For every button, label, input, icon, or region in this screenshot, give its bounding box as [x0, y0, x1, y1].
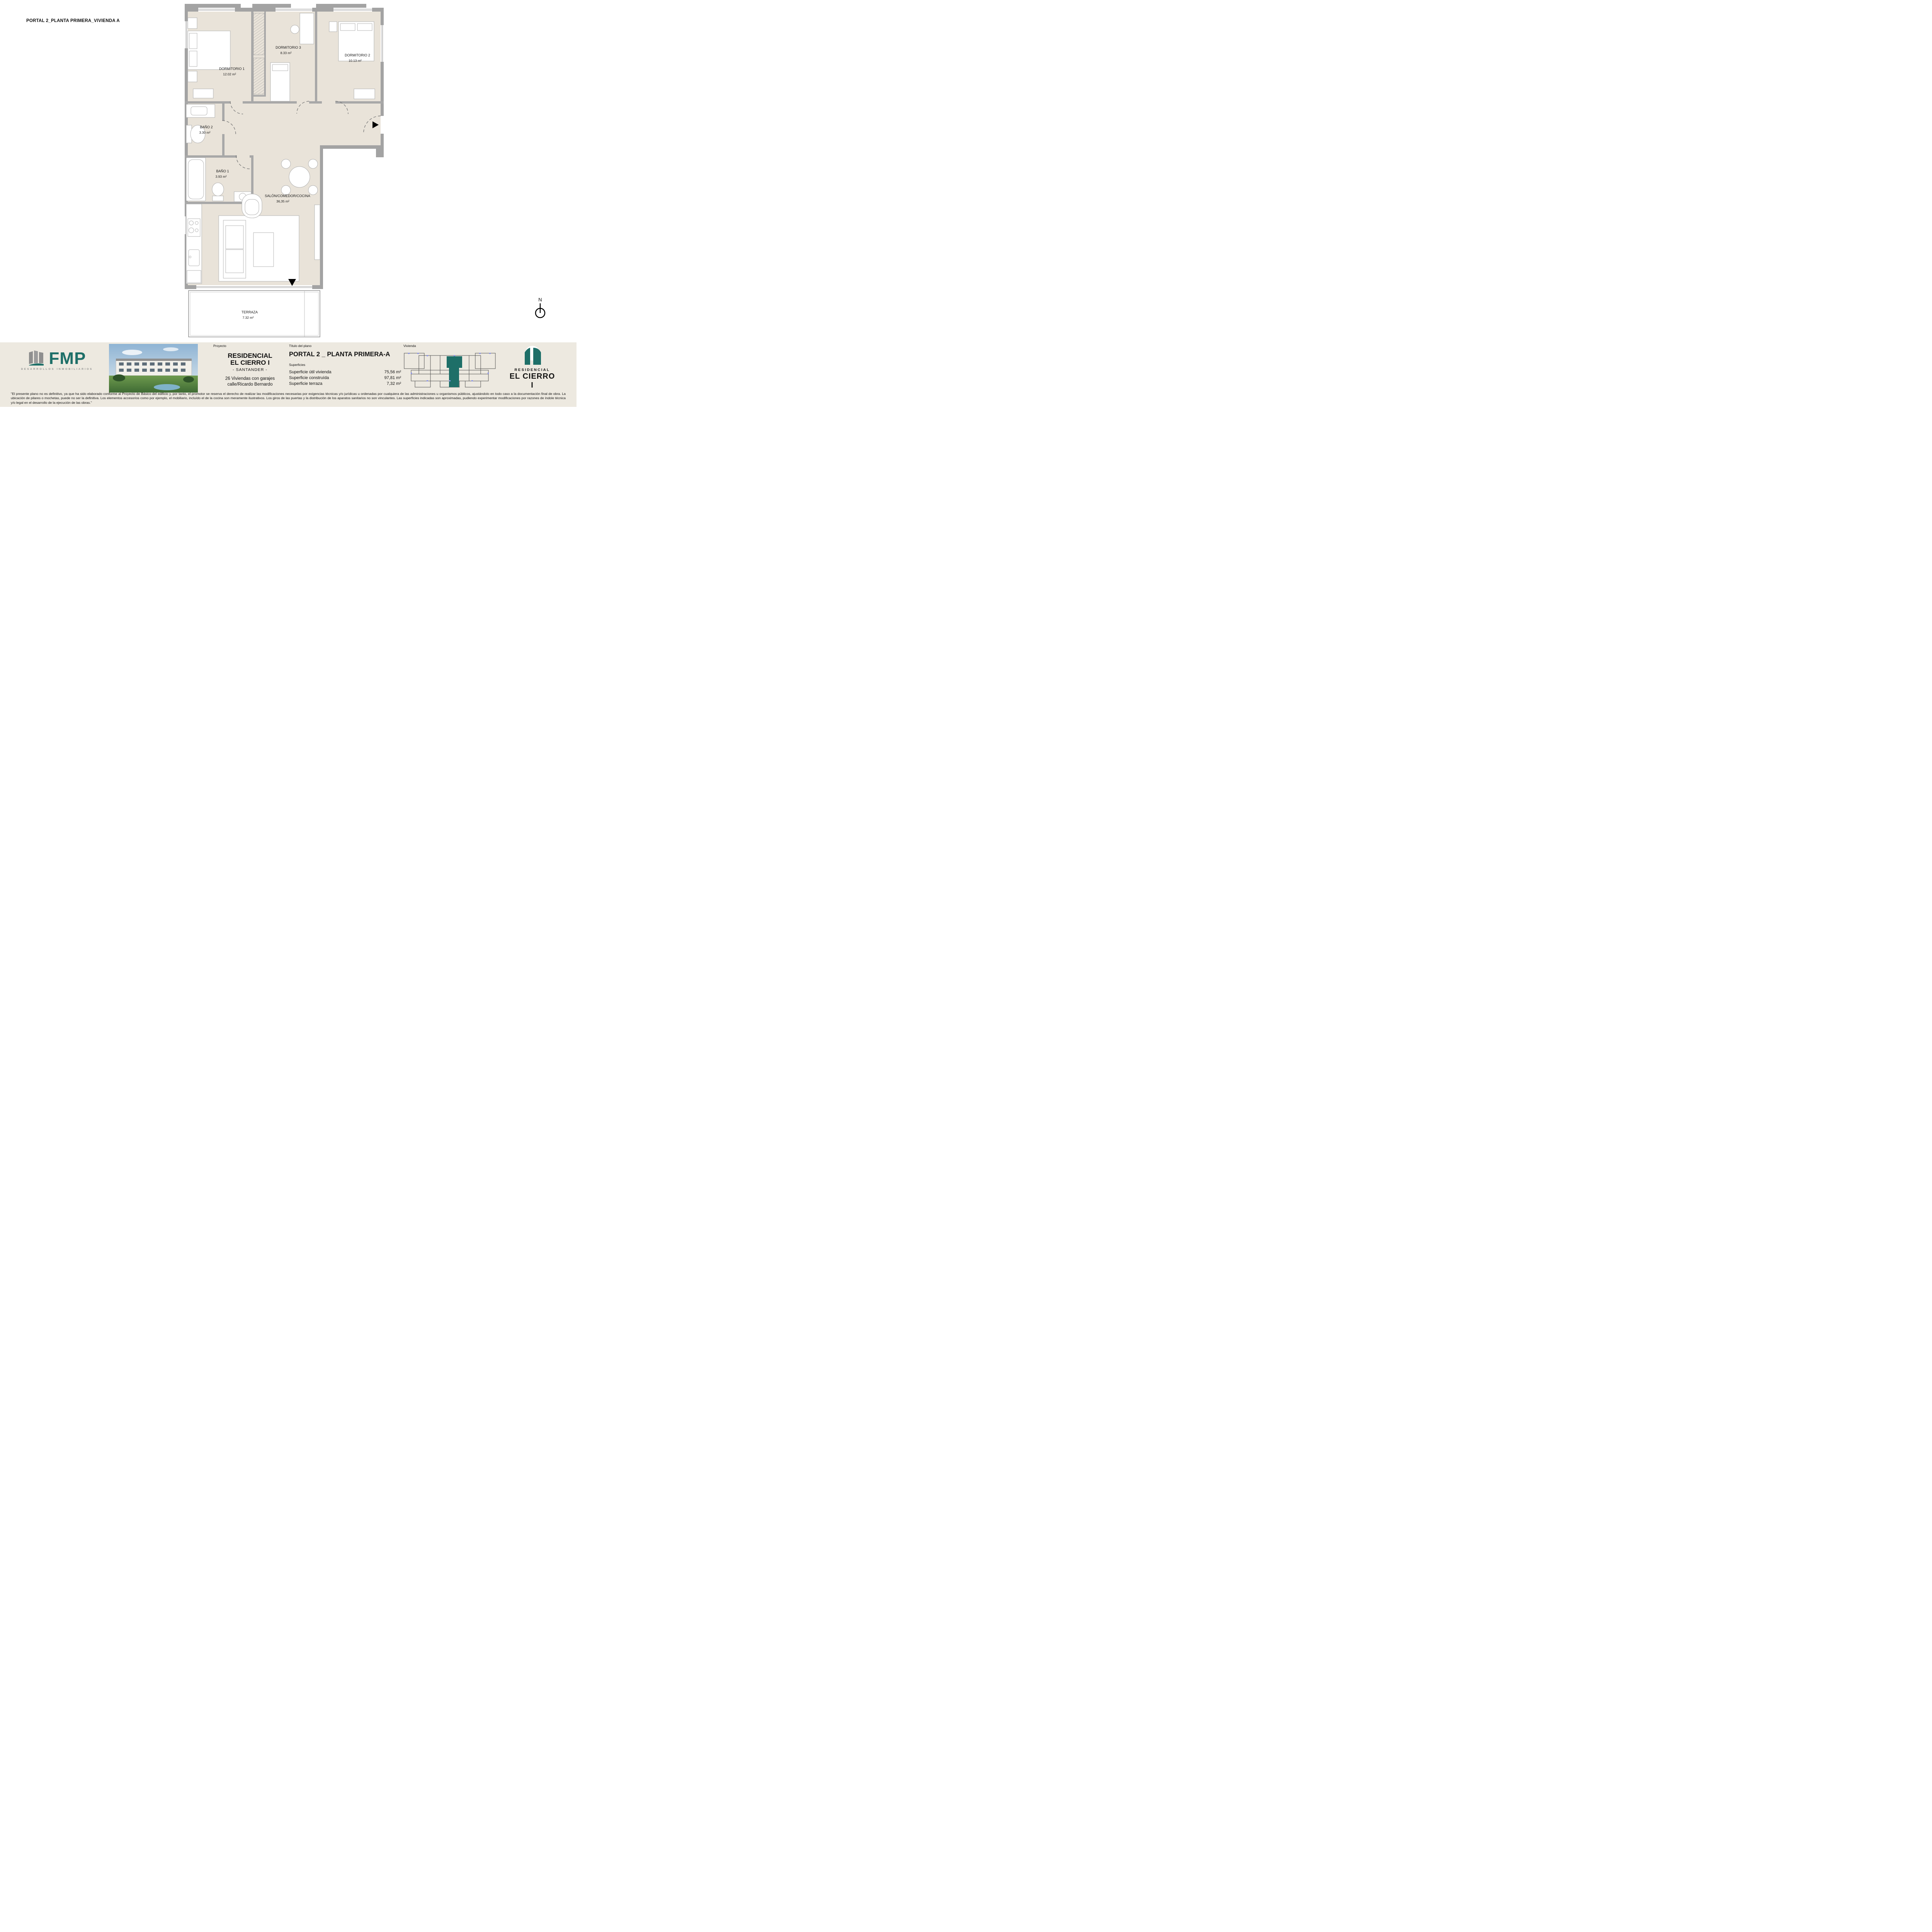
project-section: Proyecto RESIDENCIAL EL CIERRO I - SANTA… — [213, 344, 287, 388]
unit-keyplan-section: Vivienda — [403, 344, 500, 392]
dresser — [354, 89, 375, 99]
project-photo — [109, 344, 198, 393]
nightstand — [188, 18, 197, 29]
project-description-line2: calle/Ricardo Bernardo — [213, 382, 287, 388]
page-title: PORTAL 2_PLANTA PRIMERA_VIVIENDA A — [26, 19, 120, 23]
closets — [253, 13, 264, 94]
floor-plan: DORMITORIO 1 12.02 m² DORMITORIO 3 8.33 … — [185, 4, 393, 339]
north-label: N — [532, 297, 548, 303]
room-label: TERRAZA — [241, 310, 258, 314]
room-area: 7.32 m² — [243, 316, 254, 320]
room-label: DORMITORIO 3 — [276, 46, 301, 49]
surface-label: Superficie útil vivienda — [289, 370, 331, 374]
brand-logo: RESIDENCIAL EL CIERRO I — [508, 345, 556, 390]
desk — [300, 13, 314, 44]
room-area: 36,35 m² — [276, 199, 289, 203]
brand-line2: EL CIERRO I — [508, 372, 556, 390]
nightstand — [329, 22, 337, 32]
highlighted-unit — [447, 356, 462, 368]
brand-icon — [522, 345, 543, 365]
superficies-label: Superficies — [289, 363, 401, 367]
sheet-title-label: Título del plano — [289, 344, 401, 348]
north-indicator: N — [532, 297, 548, 321]
room-label: DORMITORIO 1 — [219, 67, 245, 71]
tv-unit — [315, 205, 320, 260]
toilet — [212, 183, 224, 196]
surface-value: 97,81 m² — [384, 376, 401, 380]
project-subtitle: - SANTANDER - — [213, 367, 287, 372]
unit-keyplan-label: Vivienda — [403, 344, 500, 348]
fmp-logo: FMP DESARROLLOS INMOBILIARIOS — [12, 348, 102, 371]
dining-table — [289, 167, 310, 187]
room-area: 8.33 m² — [281, 51, 292, 55]
room-area: 3.93 m² — [216, 175, 227, 179]
surface-row: Superficie terraza 7,32 m² — [289, 381, 401, 386]
surface-label: Superficie construída — [289, 376, 329, 380]
chair — [291, 25, 299, 34]
room-label: BAÑO 2 — [200, 125, 213, 129]
room-area: 3.30 m² — [199, 131, 211, 134]
room-area: 10.13 m² — [349, 59, 362, 63]
surface-label: Superficie terraza — [289, 381, 322, 386]
project-title-line2: EL CIERRO I — [213, 359, 287, 366]
room-label: BAÑO 1 — [216, 169, 229, 173]
project-title-line1: RESIDENCIAL — [213, 352, 287, 359]
project-description-line1: 26 Viviendas con garajes — [213, 376, 287, 382]
plan-sheet: PORTAL 2_PLANTA PRIMERA_VIVIENDA A — [0, 0, 577, 407]
fmp-building-icon — [28, 348, 46, 366]
title-block: FMP DESARROLLOS INMOBILIARIOS — [0, 342, 577, 407]
surface-value: 7,32 m² — [387, 381, 401, 386]
project-label: Proyecto — [213, 344, 287, 348]
chair — [308, 159, 318, 168]
sheet-title: PORTAL 2 _ PLANTA PRIMERA-A — [289, 351, 401, 358]
chair — [281, 159, 291, 168]
surface-value: 75,56 m² — [384, 370, 401, 374]
floor-plan-drawing: DORMITORIO 1 12.02 m² DORMITORIO 3 8.33 … — [185, 4, 393, 339]
unit-keyplan — [403, 350, 496, 390]
nightstand — [188, 71, 197, 82]
surface-row: Superficie útil vivienda 75,56 m² — [289, 370, 401, 374]
coffee-table — [253, 233, 274, 267]
fmp-wordmark: FMP — [49, 351, 86, 366]
north-icon — [534, 303, 547, 319]
dresser — [193, 89, 213, 98]
room-label: SALÓN/COMEDOR/COCINA — [265, 194, 310, 198]
chair — [281, 185, 291, 195]
room-area: 12.02 m² — [223, 72, 236, 76]
surface-row: Superficie construída 97,81 m² — [289, 376, 401, 380]
sheet-title-section: Título del plano PORTAL 2 _ PLANTA PRIME… — [289, 344, 401, 387]
legal-disclaimer: "El presente plano no es definitivo, ya … — [11, 392, 566, 405]
fridge — [187, 270, 201, 283]
chair — [308, 185, 318, 195]
room-label: DORMITORIO 2 — [345, 53, 370, 57]
fmp-tagline: DESARROLLOS INMOBILIARIOS — [12, 368, 102, 371]
brand-line1: RESIDENCIAL — [508, 368, 556, 372]
